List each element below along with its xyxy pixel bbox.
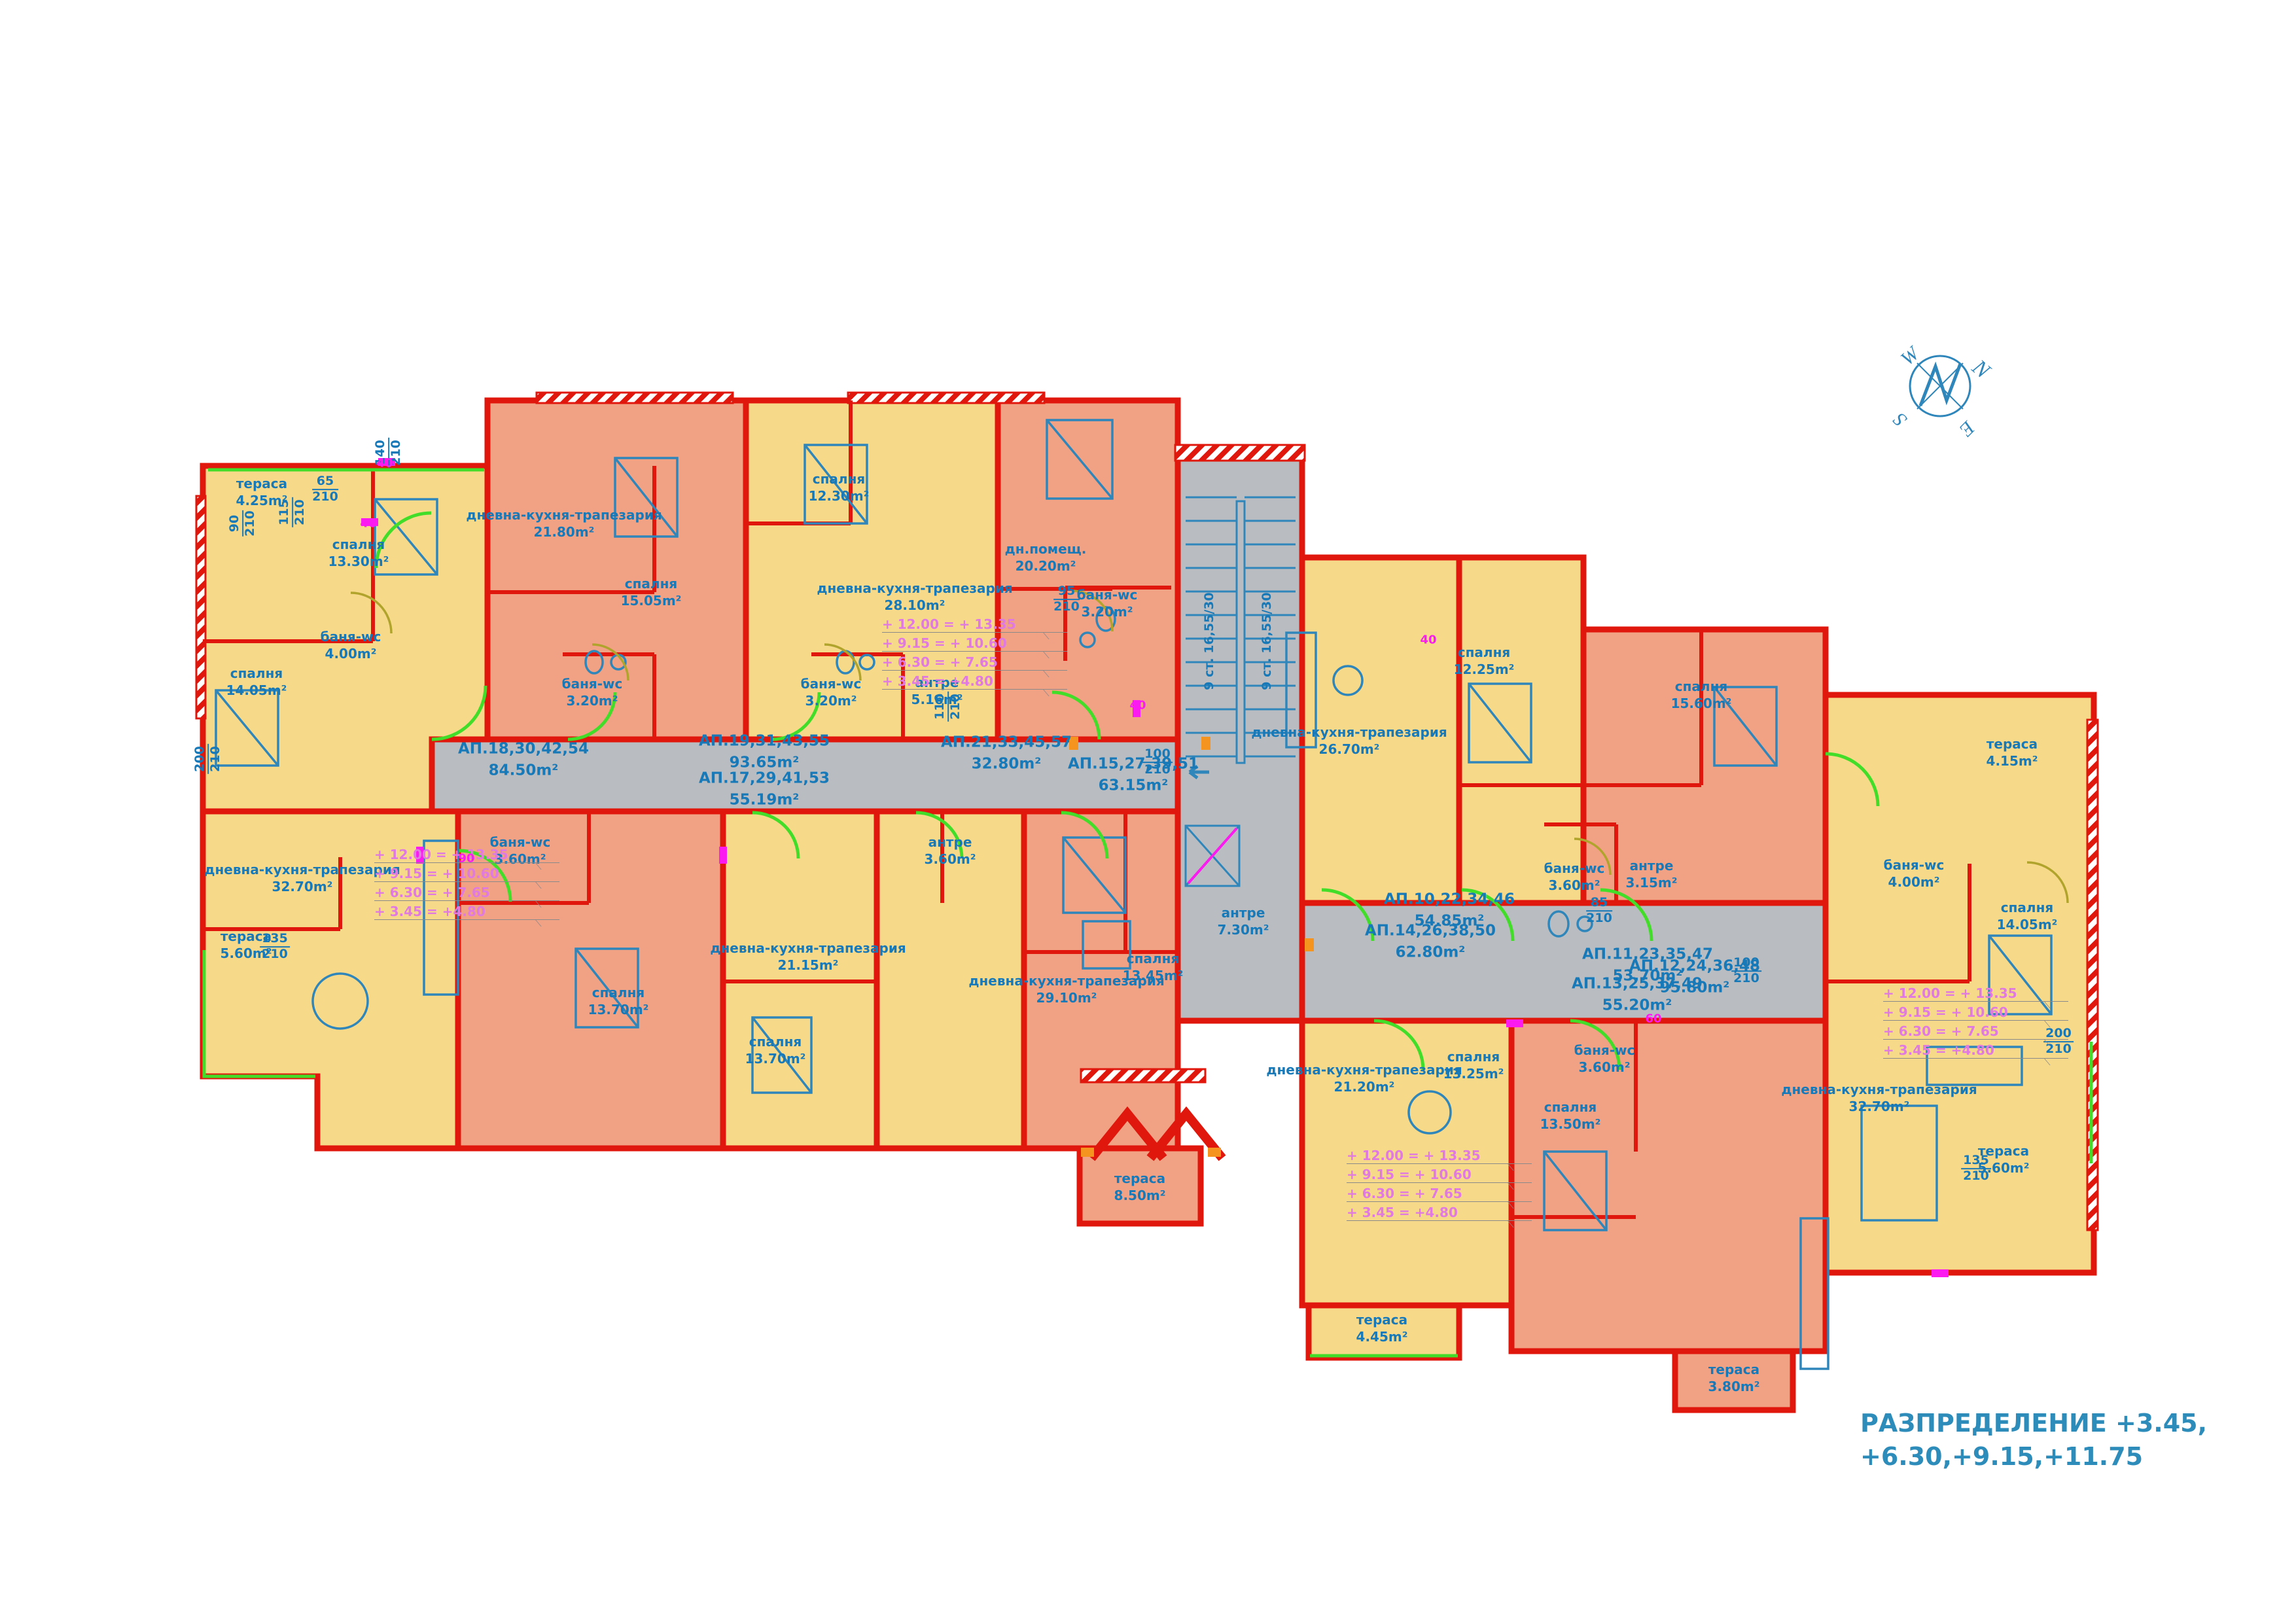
- compass-letter-e: E: [1955, 416, 1979, 440]
- compass-icon: N W S E: [1889, 342, 1996, 440]
- drawing-title: РАЗПРЕДЕЛЕНИЕ +3.45, +6.30,+9.15,+11.75: [1860, 1407, 2207, 1474]
- drawing-title-line1: РАЗПРЕДЕЛЕНИЕ +3.45,: [1860, 1407, 2207, 1440]
- compass-letter-n: N: [1967, 355, 1996, 384]
- floor-plan-drawing: N W S E: [0, 0, 2296, 1624]
- drawing-title-line2: +6.30,+9.15,+11.75: [1860, 1440, 2207, 1474]
- compass-letter-s: S: [1889, 408, 1911, 431]
- floor-plan-page: { "title": {"line1": "РАЗПРЕДЕЛЕНИЕ +3.4…: [0, 0, 2296, 1624]
